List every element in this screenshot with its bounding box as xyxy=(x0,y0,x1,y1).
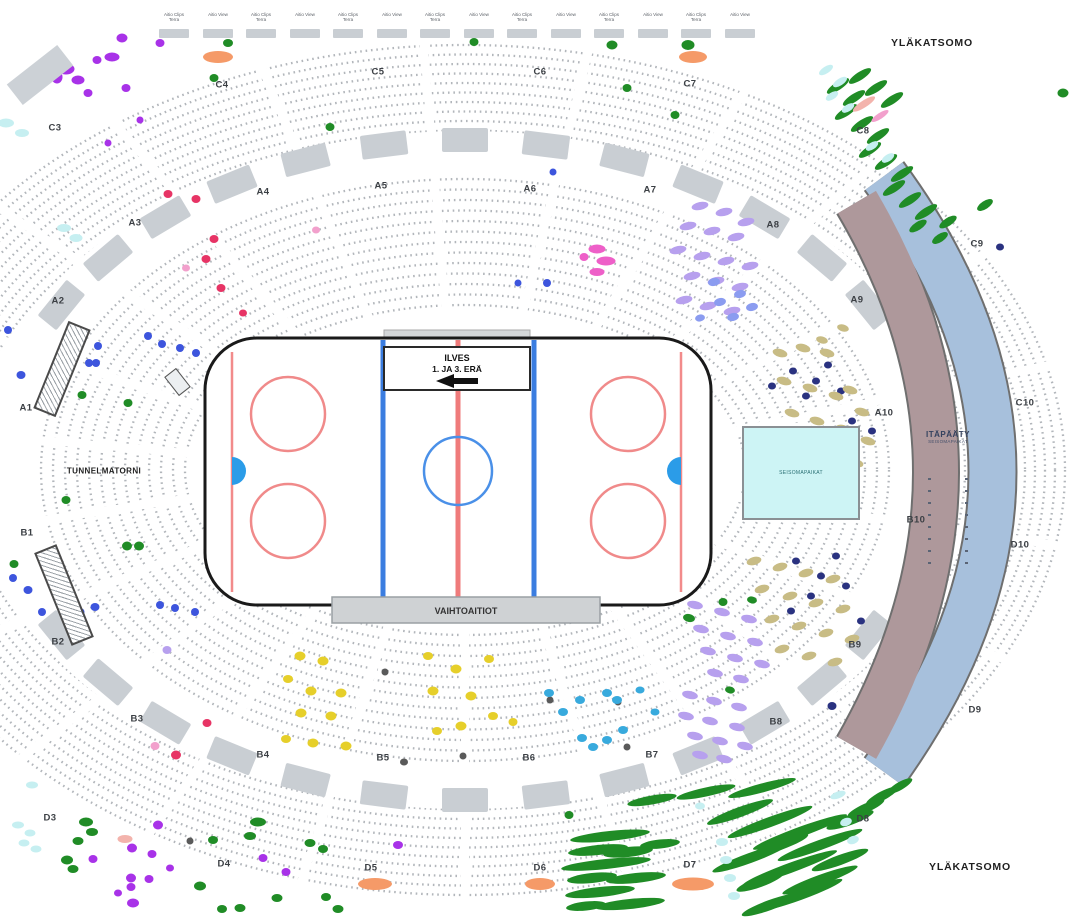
standing-area-box[interactable]: SEISOMAPAIKAT xyxy=(742,426,860,520)
section-label-a4: A4 xyxy=(257,187,270,198)
seat-cluster-lav[interactable] xyxy=(163,646,172,654)
suite-box[interactable] xyxy=(551,29,581,38)
seat-cluster-cya[interactable] xyxy=(716,838,728,846)
seat-cluster-vio[interactable] xyxy=(393,841,403,849)
seat-cluster-blu[interactable] xyxy=(158,340,166,348)
suite-label: Aitio View xyxy=(631,12,675,17)
seat-cluster-yel[interactable] xyxy=(432,727,442,735)
section-label-d8: D8 xyxy=(857,814,870,825)
seat-cluster-grn[interactable] xyxy=(623,84,632,92)
section-label-d10: D10 xyxy=(1011,540,1030,551)
upper-stand-title-top: YLÄKATSOMO xyxy=(891,37,973,49)
seat-cluster-vio[interactable] xyxy=(117,34,128,43)
suite-box[interactable] xyxy=(290,29,320,38)
static-structures: ILVES 1. JA 3. ERÄ VAIHTOAITIOT xyxy=(205,176,993,772)
seat-cluster-cya[interactable] xyxy=(12,822,24,829)
east-stand-title: ITÄPÄÄTY SEISOMAPAIKAT xyxy=(926,430,970,444)
seat-cluster-sky[interactable] xyxy=(612,696,622,704)
seat-cluster-lav[interactable] xyxy=(683,270,701,281)
seat-cluster-org[interactable] xyxy=(672,878,714,891)
seat-cluster-kha[interactable] xyxy=(819,347,836,359)
seat-cluster-kha[interactable] xyxy=(754,583,771,595)
seat-cluster-grn[interactable] xyxy=(78,391,87,399)
section-label-b2: B2 xyxy=(52,637,65,648)
seat-cluster-nvy[interactable] xyxy=(807,593,815,600)
section-label-b4: B4 xyxy=(257,750,270,761)
seat-cluster-grn[interactable] xyxy=(208,836,218,844)
seat-cluster-sky[interactable] xyxy=(577,734,587,742)
suite-box[interactable] xyxy=(420,29,450,38)
seat-cluster-grn[interactable] xyxy=(217,905,227,913)
seat-cluster-grn[interactable] xyxy=(244,832,256,840)
seat-cluster-vio[interactable] xyxy=(105,53,120,62)
section-label-c6: C6 xyxy=(534,67,547,78)
seat-cluster-sky[interactable] xyxy=(558,708,568,716)
seat-cluster-grn[interactable] xyxy=(561,854,652,873)
seat-cluster-dgy[interactable] xyxy=(400,759,408,766)
suite-box[interactable] xyxy=(681,29,711,38)
section-label-d5: D5 xyxy=(365,863,378,874)
seat-cluster-nvy[interactable] xyxy=(857,618,865,625)
seat-cluster-grn[interactable] xyxy=(606,870,667,886)
suite-label: Aitio Clips Terra xyxy=(413,12,457,22)
seat-cluster-cya[interactable] xyxy=(70,234,83,242)
seat-cluster-blu[interactable] xyxy=(176,344,184,352)
seat-cluster-grn[interactable] xyxy=(975,197,994,214)
seat-cluster-lav[interactable] xyxy=(692,623,709,634)
seat-cluster-grn[interactable] xyxy=(86,828,98,836)
suite-box[interactable] xyxy=(638,29,668,38)
section-label-b7: B7 xyxy=(646,750,659,761)
seat-cluster-lav[interactable] xyxy=(693,250,711,261)
seat-cluster-blu[interactable] xyxy=(4,326,12,334)
section-label-a5: A5 xyxy=(375,181,388,192)
suite-label: Aitio Clips Terra xyxy=(587,12,631,22)
seat-cluster-dgy[interactable] xyxy=(624,744,631,751)
section-label-b6: B6 xyxy=(523,753,536,764)
section-label-d7: D7 xyxy=(684,860,697,871)
seat-cluster-lav[interactable] xyxy=(669,244,687,255)
seat-cluster-grn[interactable] xyxy=(719,598,728,606)
seat-cluster-org[interactable] xyxy=(679,51,707,63)
seat-cluster-grn[interactable] xyxy=(235,904,246,912)
row-number-column xyxy=(928,478,931,564)
seat-cluster-vio[interactable] xyxy=(93,56,102,64)
seat-cluster-nvy[interactable] xyxy=(787,608,795,615)
suite-label: Aitio Clips Terra xyxy=(674,12,718,22)
seat-cluster-grn[interactable] xyxy=(272,894,283,902)
seat-cluster-blu[interactable] xyxy=(171,604,179,612)
section-label-b8: B8 xyxy=(770,717,783,728)
section-label-c3: C3 xyxy=(49,123,62,134)
seat-cluster-mag[interactable] xyxy=(589,245,606,254)
seat-cluster-lav[interactable] xyxy=(679,220,697,231)
seat-cluster-grn[interactable] xyxy=(566,899,607,912)
seat-cluster-cya[interactable] xyxy=(720,856,732,864)
section-label-a9: A9 xyxy=(851,295,864,306)
seat-cluster-yel[interactable] xyxy=(341,742,352,751)
seat-cluster-yel[interactable] xyxy=(336,689,347,698)
seat-cluster-vio[interactable] xyxy=(127,899,139,908)
seat-cluster-grn[interactable] xyxy=(250,818,266,827)
suite-box[interactable] xyxy=(203,29,233,38)
section-label-d9: D9 xyxy=(969,705,982,716)
seat-cluster-sky[interactable] xyxy=(544,689,554,697)
suite-label: Aitio View xyxy=(196,12,240,17)
seat-cluster-vio[interactable] xyxy=(105,140,112,147)
seat-cluster-vio[interactable] xyxy=(148,850,157,858)
seat-cluster-kha[interactable] xyxy=(835,603,852,615)
seat-cluster-grn[interactable] xyxy=(68,865,79,873)
seat-cluster-nvy[interactable] xyxy=(768,383,776,390)
suite-label: Aitio Clips Terra xyxy=(326,12,370,22)
seat-cluster-lav[interactable] xyxy=(706,667,723,678)
seat-cluster-kha[interactable] xyxy=(764,613,781,625)
seat-cluster-sky[interactable] xyxy=(602,689,612,697)
section-label-a6: A6 xyxy=(524,184,537,195)
seat-cluster-per[interactable] xyxy=(745,302,758,312)
seat-cluster-grn[interactable] xyxy=(565,811,574,819)
seat-cluster-lav[interactable] xyxy=(717,255,735,266)
seat-cluster-yel[interactable] xyxy=(428,687,439,696)
seat-cluster-red[interactable] xyxy=(239,310,247,317)
bench-label: VAIHTOAITIOT xyxy=(435,606,498,616)
seat-cluster-grn[interactable] xyxy=(223,39,233,47)
seat-cluster-pnk[interactable] xyxy=(182,265,190,272)
seat-cluster-grn[interactable] xyxy=(73,837,84,845)
seat-cluster-vio[interactable] xyxy=(89,855,98,863)
section-label-b5: B5 xyxy=(377,753,390,764)
seat-cluster-blu[interactable] xyxy=(515,280,522,287)
seat-cluster-cya[interactable] xyxy=(57,224,71,232)
seat-cluster-blu[interactable] xyxy=(550,169,557,176)
seat-cluster-blu[interactable] xyxy=(9,574,17,582)
seat-cluster-grn[interactable] xyxy=(470,38,479,46)
section-label-d4: D4 xyxy=(218,859,231,870)
section-label-c9: C9 xyxy=(971,239,984,250)
section-label-d3: D3 xyxy=(44,813,57,824)
seat-cluster-grn[interactable] xyxy=(124,399,133,407)
seat-cluster-org[interactable] xyxy=(358,878,392,890)
seat-cluster-nvy[interactable] xyxy=(832,553,840,560)
arena-svg[interactable]: ILVES 1. JA 3. ERÄ VAIHTOAITIOT xyxy=(0,0,1080,918)
seat-cluster-grn[interactable] xyxy=(122,542,132,551)
tunnelmatorni-label: TUNNELMATORNI xyxy=(67,467,141,476)
seat-cluster-grn[interactable] xyxy=(682,613,695,623)
seat-cluster-kha[interactable] xyxy=(782,590,799,602)
seat-cluster-yel[interactable] xyxy=(456,722,467,731)
seat-cluster-pnk[interactable] xyxy=(870,108,890,124)
seat-cluster-vio[interactable] xyxy=(114,890,122,897)
seat-cluster-vio[interactable] xyxy=(122,84,131,92)
standing-area-label: SEISOMAPAIKAT xyxy=(779,470,823,476)
section-label-a2: A2 xyxy=(52,296,65,307)
suite-label: Aitio View xyxy=(544,12,588,17)
seat-cluster-lav[interactable] xyxy=(699,645,716,656)
suite-label: Aitio View xyxy=(283,12,327,17)
seat-cluster-dgy[interactable] xyxy=(547,697,554,704)
seat-cluster-nvy[interactable] xyxy=(996,244,1004,251)
seat-cluster-sky[interactable] xyxy=(636,687,645,694)
section-label-a1: A1 xyxy=(20,403,33,414)
seat-cluster-nvy[interactable] xyxy=(824,362,832,369)
east-stand-sub: SEISOMAPAIKAT xyxy=(926,439,970,444)
seat-cluster-mag[interactable] xyxy=(590,268,605,276)
section-label-a10: A10 xyxy=(875,408,894,419)
suite-label: Aitio Clips Terra xyxy=(152,12,196,22)
suite-box[interactable] xyxy=(333,29,363,38)
arena-seat-map[interactable]: ILVES 1. JA 3. ERÄ VAIHTOAITIOT SEISOMAP… xyxy=(0,0,1080,918)
row-number-column xyxy=(965,478,968,564)
section-label-d6: D6 xyxy=(534,863,547,874)
seat-cluster-org[interactable] xyxy=(203,51,233,63)
seat-cluster-cya[interactable] xyxy=(695,803,705,810)
concourse-suite-box xyxy=(442,128,488,152)
seat-cluster-grn[interactable] xyxy=(682,40,695,50)
seat-cluster-vio[interactable] xyxy=(153,821,163,830)
seat-cluster-yel[interactable] xyxy=(306,687,317,696)
seat-cluster-grn[interactable] xyxy=(61,856,73,865)
seat-cluster-dgy[interactable] xyxy=(187,838,194,845)
seat-cluster-cya[interactable] xyxy=(15,129,29,137)
seat-cluster-blu[interactable] xyxy=(144,332,152,340)
seat-cluster-red[interactable] xyxy=(203,719,212,727)
seat-cluster-red[interactable] xyxy=(192,195,201,203)
seat-cluster-sky[interactable] xyxy=(602,736,612,744)
seat-cluster-nvy[interactable] xyxy=(848,418,856,425)
seat-cluster-cya[interactable] xyxy=(31,846,42,853)
seat-cluster-yel[interactable] xyxy=(308,739,319,748)
seat-cluster-mag[interactable] xyxy=(580,253,589,261)
suite-box[interactable] xyxy=(507,29,537,38)
seat-cluster-blu[interactable] xyxy=(85,359,93,367)
seat-cluster-vio[interactable] xyxy=(259,854,268,862)
suite-box[interactable] xyxy=(594,29,624,38)
section-label-a7: A7 xyxy=(644,185,657,196)
seat-cluster-sky[interactable] xyxy=(575,696,585,704)
section-label-b3: B3 xyxy=(131,714,144,725)
seat-cluster-grn[interactable] xyxy=(607,41,618,50)
seat-cluster-lav[interactable] xyxy=(726,652,743,663)
suite-box[interactable] xyxy=(464,29,494,38)
suite-box[interactable] xyxy=(246,29,276,38)
seat-cluster-grn[interactable] xyxy=(194,882,206,891)
seat-cluster-red[interactable] xyxy=(210,235,219,243)
seat-cluster-pnk[interactable] xyxy=(151,742,160,750)
seat-cluster-grn[interactable] xyxy=(134,542,144,551)
seat-cluster-grn[interactable] xyxy=(565,883,636,900)
seat-cluster-cya[interactable] xyxy=(19,840,30,847)
section-label-c7: C7 xyxy=(684,79,697,90)
seat-cluster-grn[interactable] xyxy=(724,686,735,695)
suite-box[interactable] xyxy=(377,29,407,38)
seat-cluster-lav[interactable] xyxy=(732,673,749,684)
seat-cluster-dgy[interactable] xyxy=(460,753,467,760)
seat-cluster-yel[interactable] xyxy=(488,712,498,720)
seat-cluster-lav[interactable] xyxy=(719,630,736,641)
seat-cluster-nvy[interactable] xyxy=(842,583,850,590)
seat-cluster-vio[interactable] xyxy=(137,117,144,124)
seat-cluster-grn[interactable] xyxy=(79,818,93,827)
seat-cluster-blu[interactable] xyxy=(191,608,199,616)
section-label-c8: C8 xyxy=(857,126,870,137)
section-label-c4: C4 xyxy=(216,80,229,91)
seat-cluster-yel[interactable] xyxy=(423,652,433,660)
seat-cluster-yel[interactable] xyxy=(484,655,494,663)
seat-cluster-yel[interactable] xyxy=(281,735,291,743)
seat-cluster-cya[interactable] xyxy=(728,892,740,900)
seat-cluster-cya[interactable] xyxy=(25,830,36,837)
concourse-suite-box xyxy=(442,788,488,812)
seat-cluster-blu[interactable] xyxy=(192,349,200,357)
seat-cluster-yel[interactable] xyxy=(451,665,462,674)
seat-cluster-red[interactable] xyxy=(202,255,211,263)
seat-cluster-sky[interactable] xyxy=(651,709,660,716)
section-label-b9: B9 xyxy=(849,640,862,651)
seat-cluster-vio[interactable] xyxy=(166,865,174,872)
section-label-a3: A3 xyxy=(129,218,142,229)
seat-cluster-vio[interactable] xyxy=(127,883,136,891)
seat-cluster-nvy[interactable] xyxy=(789,368,797,375)
seat-cluster-red[interactable] xyxy=(164,190,173,198)
seat-cluster-dgy[interactable] xyxy=(382,669,389,676)
seat-cluster-yel[interactable] xyxy=(296,709,307,718)
seat-cluster-org[interactable] xyxy=(525,878,555,890)
suite-label: Aitio View xyxy=(718,12,762,17)
suite-label: Aitio Clips Terra xyxy=(239,12,283,22)
upper-stand-title-bottom: YLÄKATSOMO xyxy=(929,861,1011,873)
seat-cluster-red[interactable] xyxy=(171,751,181,760)
seat-cluster-nvy[interactable] xyxy=(868,428,876,435)
seat-cluster-grn[interactable] xyxy=(671,111,680,119)
seat-cluster-blu[interactable] xyxy=(24,586,33,594)
east-stand-name: ITÄPÄÄTY xyxy=(926,430,970,439)
seat-cluster-kha[interactable] xyxy=(776,375,793,387)
seat-cluster-nvy[interactable] xyxy=(828,702,837,710)
seat-cluster-vio[interactable] xyxy=(282,868,291,876)
seat-cluster-blu[interactable] xyxy=(94,342,102,350)
section-label-b1: B1 xyxy=(21,528,34,539)
seat-cluster-blu[interactable] xyxy=(91,603,100,611)
seat-cluster-sal[interactable] xyxy=(118,835,133,843)
seat-cluster-sky[interactable] xyxy=(588,743,598,751)
seat-cluster-blu[interactable] xyxy=(17,371,26,379)
seat-cluster-pnk[interactable] xyxy=(312,227,320,234)
seat-cluster-vio[interactable] xyxy=(126,874,136,883)
seat-cluster-sky[interactable] xyxy=(618,726,628,734)
seat-cluster-vio[interactable] xyxy=(156,39,165,47)
seat-cluster-red[interactable] xyxy=(217,284,226,292)
seat-cluster-grn[interactable] xyxy=(333,905,344,913)
seat-cluster-grn[interactable] xyxy=(746,596,757,605)
suite-box[interactable] xyxy=(159,29,189,38)
suite-box[interactable] xyxy=(725,29,755,38)
seat-cluster-grn[interactable] xyxy=(879,90,905,111)
seat-cluster-yel[interactable] xyxy=(283,675,293,683)
seat-cluster-yel[interactable] xyxy=(318,657,329,666)
seat-cluster-grn[interactable] xyxy=(740,890,800,918)
seat-cluster-vio[interactable] xyxy=(84,89,93,97)
seat-cluster-cya[interactable] xyxy=(724,874,736,882)
seat-cluster-mag[interactable] xyxy=(597,257,616,266)
section-label-b10: B10 xyxy=(907,515,926,526)
suite-label: Aitio Clips Terra xyxy=(500,12,544,22)
seat-cluster-kha[interactable] xyxy=(791,620,808,632)
seat-cluster-nvy[interactable] xyxy=(817,573,825,580)
seat-cluster-grn[interactable] xyxy=(627,791,678,809)
section-label-c5: C5 xyxy=(372,67,385,78)
suite-label: Aitio View xyxy=(457,12,501,17)
seat-cluster-blu[interactable] xyxy=(38,608,46,616)
seat-cluster-grn[interactable] xyxy=(735,869,785,895)
section-label-a8: A8 xyxy=(767,220,780,231)
seat-cluster-grn[interactable] xyxy=(676,781,737,802)
seat-cluster-blu[interactable] xyxy=(92,359,100,367)
seat-cluster-yel[interactable] xyxy=(326,712,337,721)
seat-cluster-vio[interactable] xyxy=(72,76,85,85)
seat-cluster-blu[interactable] xyxy=(543,279,551,287)
seat-cluster-cya[interactable] xyxy=(0,119,14,128)
seat-cluster-grn[interactable] xyxy=(318,845,328,853)
team-name: ILVES xyxy=(444,353,469,363)
seat-cluster-yel[interactable] xyxy=(509,718,518,726)
seat-cluster-cya[interactable] xyxy=(26,782,38,789)
seat-cluster-grn[interactable] xyxy=(321,893,331,901)
seat-cluster-cya[interactable] xyxy=(817,63,834,78)
seat-cluster-grn[interactable] xyxy=(863,78,889,99)
section-label-c10: C10 xyxy=(1016,398,1035,409)
seat-cluster-grn[interactable] xyxy=(847,66,873,87)
seat-cluster-nvy[interactable] xyxy=(812,378,820,385)
seat-cluster-vio[interactable] xyxy=(145,875,154,883)
seat-cluster-vio[interactable] xyxy=(127,844,137,853)
seat-cluster-nvy[interactable] xyxy=(792,558,800,565)
periods-text: 1. JA 3. ERÄ xyxy=(432,364,482,374)
seat-cluster-blu[interactable] xyxy=(156,601,164,609)
ice-rink: ILVES 1. JA 3. ERÄ VAIHTOAITIOT xyxy=(205,330,711,623)
suite-label: Aitio View xyxy=(370,12,414,17)
seat-cluster-grn[interactable] xyxy=(305,839,316,847)
seat-cluster-grn[interactable] xyxy=(1058,89,1069,98)
seat-cluster-yel[interactable] xyxy=(466,692,477,701)
seat-cluster-grn[interactable] xyxy=(326,123,335,131)
seat-cluster-grn[interactable] xyxy=(62,496,71,504)
seat-cluster-yel[interactable] xyxy=(295,652,306,661)
seat-cluster-nvy[interactable] xyxy=(802,393,810,400)
seat-cluster-grn[interactable] xyxy=(10,560,19,568)
